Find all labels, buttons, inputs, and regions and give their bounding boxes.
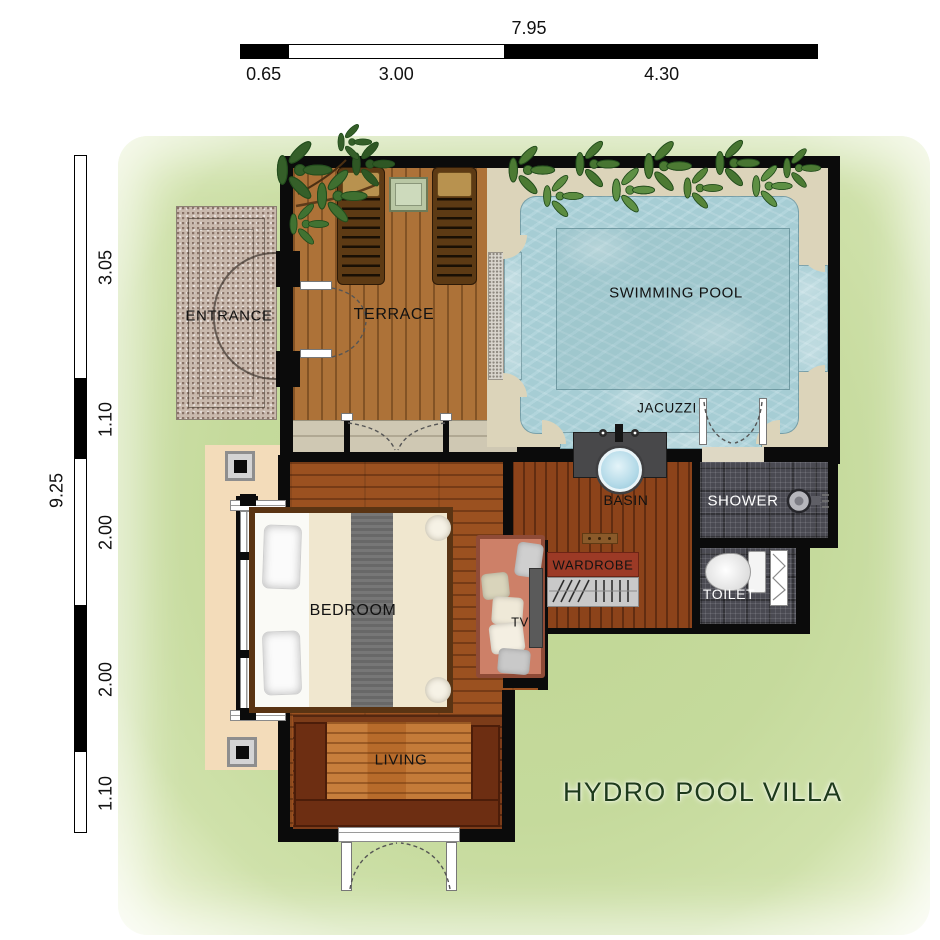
living-label: LIVING xyxy=(375,752,428,769)
bedroom-label: BEDROOM xyxy=(310,602,397,620)
dim-value: 3.00 xyxy=(287,64,505,85)
scale-segment xyxy=(75,752,86,832)
hanger-hatch-icon xyxy=(549,580,637,602)
left-scale: 9.25 3.05 1.10 2.00 2.00 1.10 xyxy=(40,155,130,833)
shower-head-icon xyxy=(788,490,829,512)
dim-value: 2.00 xyxy=(96,503,117,563)
scale-segment xyxy=(288,45,505,58)
scale-segment xyxy=(505,45,817,58)
plan-title: HYDRO POOL VILLA xyxy=(563,777,842,808)
left-scale-bar xyxy=(74,155,87,833)
jacuzzi-label: JACUZZI xyxy=(637,401,697,416)
top-scale-values: 0.65 3.00 4.30 xyxy=(240,64,818,85)
dim-value: 3.05 xyxy=(96,238,117,298)
dim-value: 4.30 xyxy=(505,64,818,85)
swimming-pool-label: SWIMMING POOL xyxy=(609,285,743,302)
faucet-icon xyxy=(599,424,639,442)
dim-value: 1.10 xyxy=(96,390,117,450)
terrace-label: TERRACE xyxy=(354,306,435,324)
entrance-label: ENTRANCE xyxy=(185,308,272,325)
top-scale-total: 7.95 xyxy=(240,18,818,39)
dim-value: 2.00 xyxy=(96,650,117,710)
dim-value: 1.10 xyxy=(96,764,117,824)
tv-label: TV xyxy=(511,615,529,630)
scale-segment xyxy=(75,605,86,751)
shower-label: SHOWER xyxy=(707,493,778,510)
basin-label: BASIN xyxy=(603,492,648,508)
scale-segment xyxy=(241,45,288,58)
tree-icon xyxy=(277,123,394,246)
scale-segment xyxy=(75,156,86,379)
scale-segment xyxy=(75,459,86,605)
wardrobe-label: WARDROBE xyxy=(553,558,634,573)
floor-plan-page: ENTRANCE TERRACE SWIMMING POOL JACUZZI B… xyxy=(0,0,940,940)
pool-plants-icon xyxy=(509,138,821,219)
scale-segment xyxy=(75,379,86,459)
left-scale-total: 9.25 xyxy=(47,461,68,521)
top-scale-bar xyxy=(240,44,818,59)
top-scale: 7.95 0.65 3.00 4.30 xyxy=(240,18,818,92)
toilet-label: TOILET xyxy=(703,586,755,602)
dim-value: 0.65 xyxy=(240,64,287,85)
louver-glass-icon xyxy=(773,554,785,600)
